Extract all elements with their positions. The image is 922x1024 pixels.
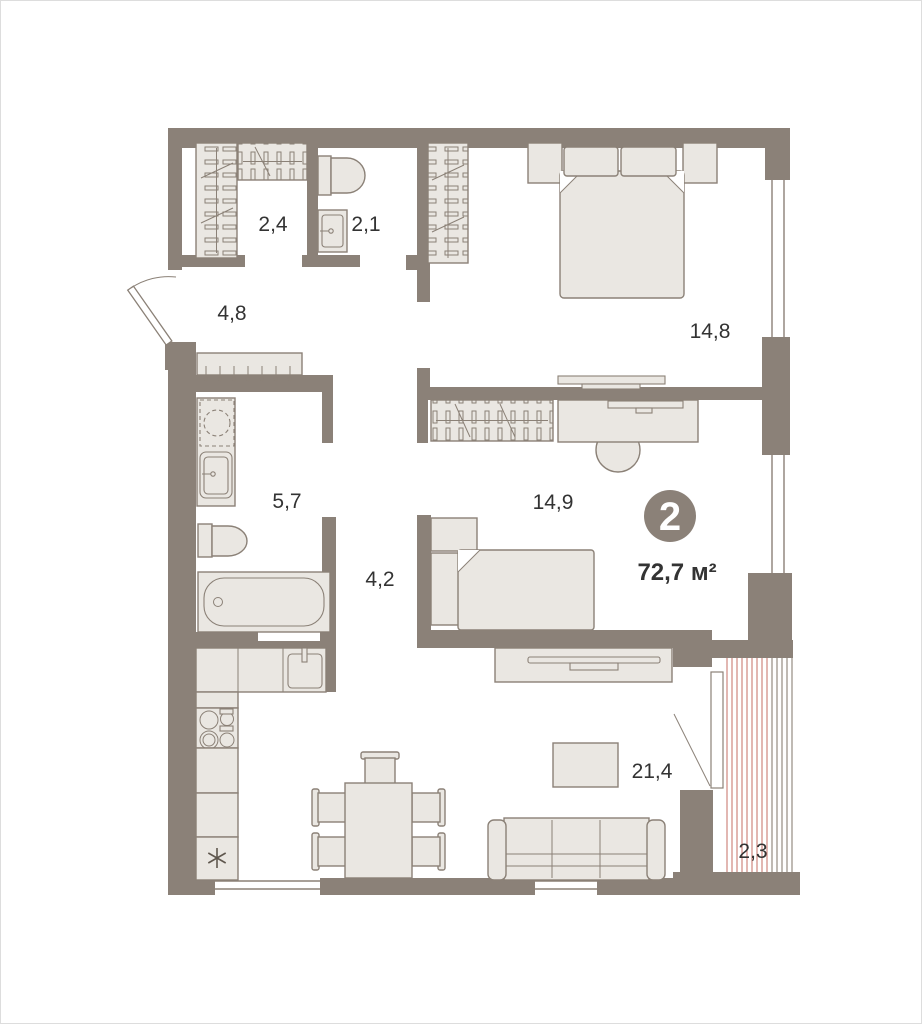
dining-chair bbox=[318, 837, 346, 866]
room-area-label-balcony: 2,3 bbox=[738, 840, 767, 863]
kitchen-counter-piece bbox=[196, 748, 238, 793]
wall-corridor-right-upper bbox=[417, 400, 428, 443]
wc-sink-faucet-knob bbox=[329, 229, 333, 233]
dining-chair bbox=[365, 758, 395, 784]
sofa-body bbox=[504, 818, 649, 880]
room-bathroom bbox=[197, 398, 330, 632]
room-entry-wardrobe bbox=[196, 143, 307, 258]
wall-left-upper bbox=[168, 148, 182, 270]
room-area-label-bedroom-main: 14,8 bbox=[690, 320, 731, 343]
door-swing-line bbox=[674, 714, 710, 786]
dining-chair bbox=[412, 793, 440, 822]
bedroom-second-tv-bracket bbox=[636, 408, 652, 413]
wall-living-right-bottom bbox=[680, 790, 713, 878]
room-area-label-living-kitchen: 21,4 bbox=[632, 760, 673, 783]
single-bed-headboard bbox=[431, 553, 459, 625]
hall-coat-rack bbox=[197, 353, 302, 375]
pillow-right bbox=[621, 147, 676, 176]
kitchen-sink-faucet bbox=[302, 648, 307, 662]
total-area-label: 72,7 м² bbox=[637, 559, 716, 586]
room-count-value: 2 bbox=[659, 495, 681, 539]
stove-control bbox=[220, 726, 233, 731]
dining-table bbox=[345, 783, 412, 878]
tv-screen bbox=[528, 657, 660, 663]
dining-chair bbox=[412, 837, 440, 866]
pillow-left bbox=[564, 147, 618, 176]
single-bed bbox=[458, 550, 594, 630]
entry-door-leaf bbox=[128, 286, 172, 345]
wall-entry-block bbox=[165, 342, 196, 370]
windows bbox=[215, 180, 784, 895]
dining-chair bbox=[318, 793, 346, 822]
wall-left-main bbox=[168, 370, 196, 878]
bathroom-wall-notch bbox=[258, 632, 320, 641]
floor-plan-page: 2,4 2,1 4,8 14,8 5,7 14,9 4,2 21,4 2,3 2… bbox=[0, 0, 922, 1024]
nightstand-right bbox=[683, 143, 717, 183]
toilet-tank-2 bbox=[198, 524, 212, 557]
kitchen-counter-piece bbox=[196, 793, 238, 837]
room-wc bbox=[318, 156, 365, 252]
wall-right-upper bbox=[765, 128, 790, 180]
kitchen-counter-piece bbox=[196, 692, 238, 708]
bedside-table bbox=[431, 518, 477, 551]
wall-living-right-top bbox=[673, 630, 712, 667]
wall-right-mid bbox=[762, 337, 790, 455]
room-area-labels: 2,4 2,1 4,8 14,8 5,7 14,9 4,2 21,4 2,3 bbox=[217, 213, 767, 863]
floor-plan-canvas: 2,4 2,1 4,8 14,8 5,7 14,9 4,2 21,4 2,3 2… bbox=[0, 0, 922, 1024]
bathroom-sink-faucet-knob bbox=[211, 472, 215, 476]
bedroom-second-tv-panel bbox=[608, 401, 683, 408]
double-bed bbox=[560, 171, 684, 298]
tv-stand bbox=[570, 663, 618, 670]
bedroom-main-tv-stand bbox=[582, 384, 640, 389]
nightstand-left bbox=[528, 143, 562, 183]
walls bbox=[165, 128, 800, 895]
sofa-armrest-right bbox=[647, 820, 665, 880]
wall-corridor-right-lower bbox=[417, 515, 431, 630]
toilet-tank bbox=[318, 156, 331, 195]
sofa-armrest-left bbox=[488, 820, 506, 880]
room-area-label-bedroom-second: 14,9 bbox=[533, 491, 574, 514]
wall-wc-front bbox=[302, 255, 360, 267]
wall-wardrobe-wc-divider bbox=[307, 143, 318, 257]
room-area-label-hallway: 4,8 bbox=[217, 302, 246, 325]
bedroom-main-tv-panel bbox=[558, 376, 665, 384]
room-bedroom-main bbox=[428, 143, 717, 389]
coffee-table bbox=[553, 743, 618, 787]
wall-living-top bbox=[417, 630, 673, 648]
room-living-kitchen bbox=[196, 648, 672, 880]
entry-door bbox=[128, 277, 176, 345]
stove-control bbox=[220, 709, 233, 714]
room-area-label-corridor: 4,2 bbox=[365, 568, 394, 591]
room-area-label-wc: 2,1 bbox=[351, 213, 380, 236]
balcony-door-panel bbox=[711, 672, 723, 788]
room-area-label-entry-wardrobe: 2,4 bbox=[258, 213, 288, 236]
door-swing-arc bbox=[131, 277, 176, 288]
room-area-label-bathroom: 5,7 bbox=[272, 490, 301, 513]
wall-bathroom-right-upper bbox=[322, 375, 333, 443]
bathroom-sink-basin bbox=[204, 457, 228, 494]
apartment-badge: 2 72,7 м² bbox=[637, 490, 716, 586]
toilet-bowl-2 bbox=[212, 526, 247, 556]
wall-hall-bathroom bbox=[168, 375, 333, 392]
toilet-bowl bbox=[331, 158, 365, 193]
